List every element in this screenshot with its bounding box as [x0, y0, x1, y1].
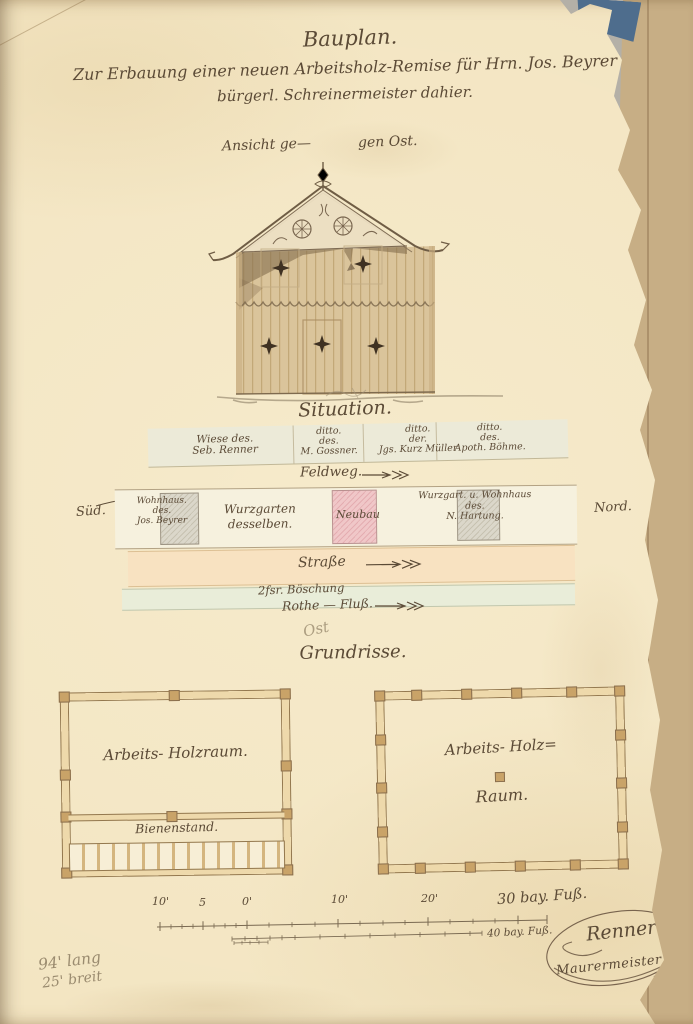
wall-post [411, 690, 422, 701]
scale-tick-label: 0' [242, 895, 252, 908]
wurzgarten-label: Wurzgarten desselben. [210, 501, 310, 532]
nord-label: Nord. [594, 499, 633, 516]
finial-ornament [318, 168, 328, 182]
wall-post [511, 688, 522, 699]
wall-post [465, 862, 476, 873]
grundrisse-heading: Grundrisse. [268, 641, 438, 665]
paper-stain [60, 980, 360, 1024]
wall-post [570, 859, 581, 870]
ost-pencil-note: Ost [301, 617, 330, 640]
wall-post [378, 863, 389, 874]
elevation-caption-right: gen Ost. [358, 133, 418, 151]
wall-post [461, 689, 472, 700]
plot-label-boehme: ditto. des. Apoth. Böhme. [440, 422, 541, 454]
wall-post [280, 688, 291, 699]
title-line-2: Zur Erbauung einer neuen Arbeitsholz-Rem… [55, 50, 635, 84]
star-vent-icon [313, 335, 331, 353]
floorplan-right: Arbeits- Holz= Raum. [376, 687, 627, 872]
plot-label-line: M. Gossner. [298, 446, 360, 457]
mid-plot-strip: Wohnhaus. des. Jos. Beyrer Wurzgarten de… [115, 485, 578, 550]
plot-divider [293, 425, 295, 463]
star-vent-icon [354, 255, 372, 273]
plot-label-line: Jos. Beyrer [123, 516, 201, 527]
corner-post [236, 252, 242, 394]
scale-tick-label: 5 [199, 896, 206, 909]
gable-pendant [347, 263, 355, 271]
center-post [495, 772, 505, 782]
wall-post [374, 690, 385, 701]
floorplan-left: Arbeits- Holzraum. Bienenstand. [61, 690, 292, 876]
elevation-drawing [203, 160, 495, 404]
star-vent-icon [260, 337, 278, 355]
wall-post [617, 821, 628, 832]
plot-label-line: Apoth. Böhme. [440, 442, 540, 454]
wall-post [614, 685, 625, 696]
scale-tick-label: 10' [152, 895, 169, 908]
scale-tick-label: 10' [331, 893, 348, 906]
scale-tick-label: 20' [421, 892, 438, 905]
wall-post [377, 826, 388, 837]
plot-label-line: N. Hartung. [400, 511, 550, 523]
page-title: Bauplan. [260, 23, 441, 53]
wall-post [618, 858, 629, 869]
wohnhaus-label: Wohnhaus. des. Jos. Beyrer [123, 496, 201, 527]
bee-stall-row [69, 840, 285, 871]
elevation-linework [203, 160, 495, 404]
star-vent-icon [367, 337, 385, 355]
feldweg-label: Feldweg. [300, 463, 362, 480]
feldweg-direction-arrow [362, 468, 412, 480]
wall-post [60, 769, 71, 780]
corner-post [429, 246, 435, 394]
wall-post [515, 861, 526, 872]
strasse-direction-arrow [366, 558, 426, 571]
scale-bar: 10' 5 0' 10' 20' 30 bay. Fuß. 40 bay. Fu… [135, 893, 580, 955]
fluss-label: Rothe — Fluß. [282, 595, 373, 613]
strasse-label: Straße [298, 554, 346, 571]
wall-post [169, 690, 180, 701]
plot-label-line: desselben. [210, 516, 310, 532]
neubau-label: Neubau [336, 508, 373, 521]
wall-post [59, 691, 70, 702]
strasse-band: Straße [128, 545, 575, 587]
plot-divider [363, 424, 365, 462]
gable-panel [241, 190, 405, 252]
boeschung-label: 2fsr. Böschung [258, 580, 345, 597]
hartung-label: Wurzgart. u. Wohnhaus des. N. Hartung. [400, 490, 550, 523]
north-plot-strip: Wiese des. Seb. Renner ditto. des. M. Go… [148, 419, 569, 468]
fluss-direction-arrow [375, 600, 430, 612]
plot-label-gossner: ditto. des. M. Gossner. [298, 426, 361, 457]
wall-post [415, 863, 426, 874]
plot-label-renner: Wiese des. Seb. Renner [160, 433, 290, 458]
wall-post [566, 686, 577, 697]
plot-label-line: Wurzgarten [210, 501, 310, 517]
scalloped-boards [236, 302, 434, 306]
wall-post [281, 760, 292, 771]
scanned-plan-page: Bauplan. Zur Erbauung einer neuen Arbeit… [0, 0, 693, 1024]
fold-crease [0, 0, 121, 56]
elevation-caption-left: Ansicht ge— [222, 135, 311, 154]
plot-label-line: Seb. Renner [160, 444, 290, 458]
main-paper-sheet: Bauplan. Zur Erbauung einer neuen Arbeit… [0, 0, 693, 1024]
title-line-3: bürgerl. Schreinermeister dahier. [150, 82, 540, 107]
door-outline [303, 320, 341, 394]
